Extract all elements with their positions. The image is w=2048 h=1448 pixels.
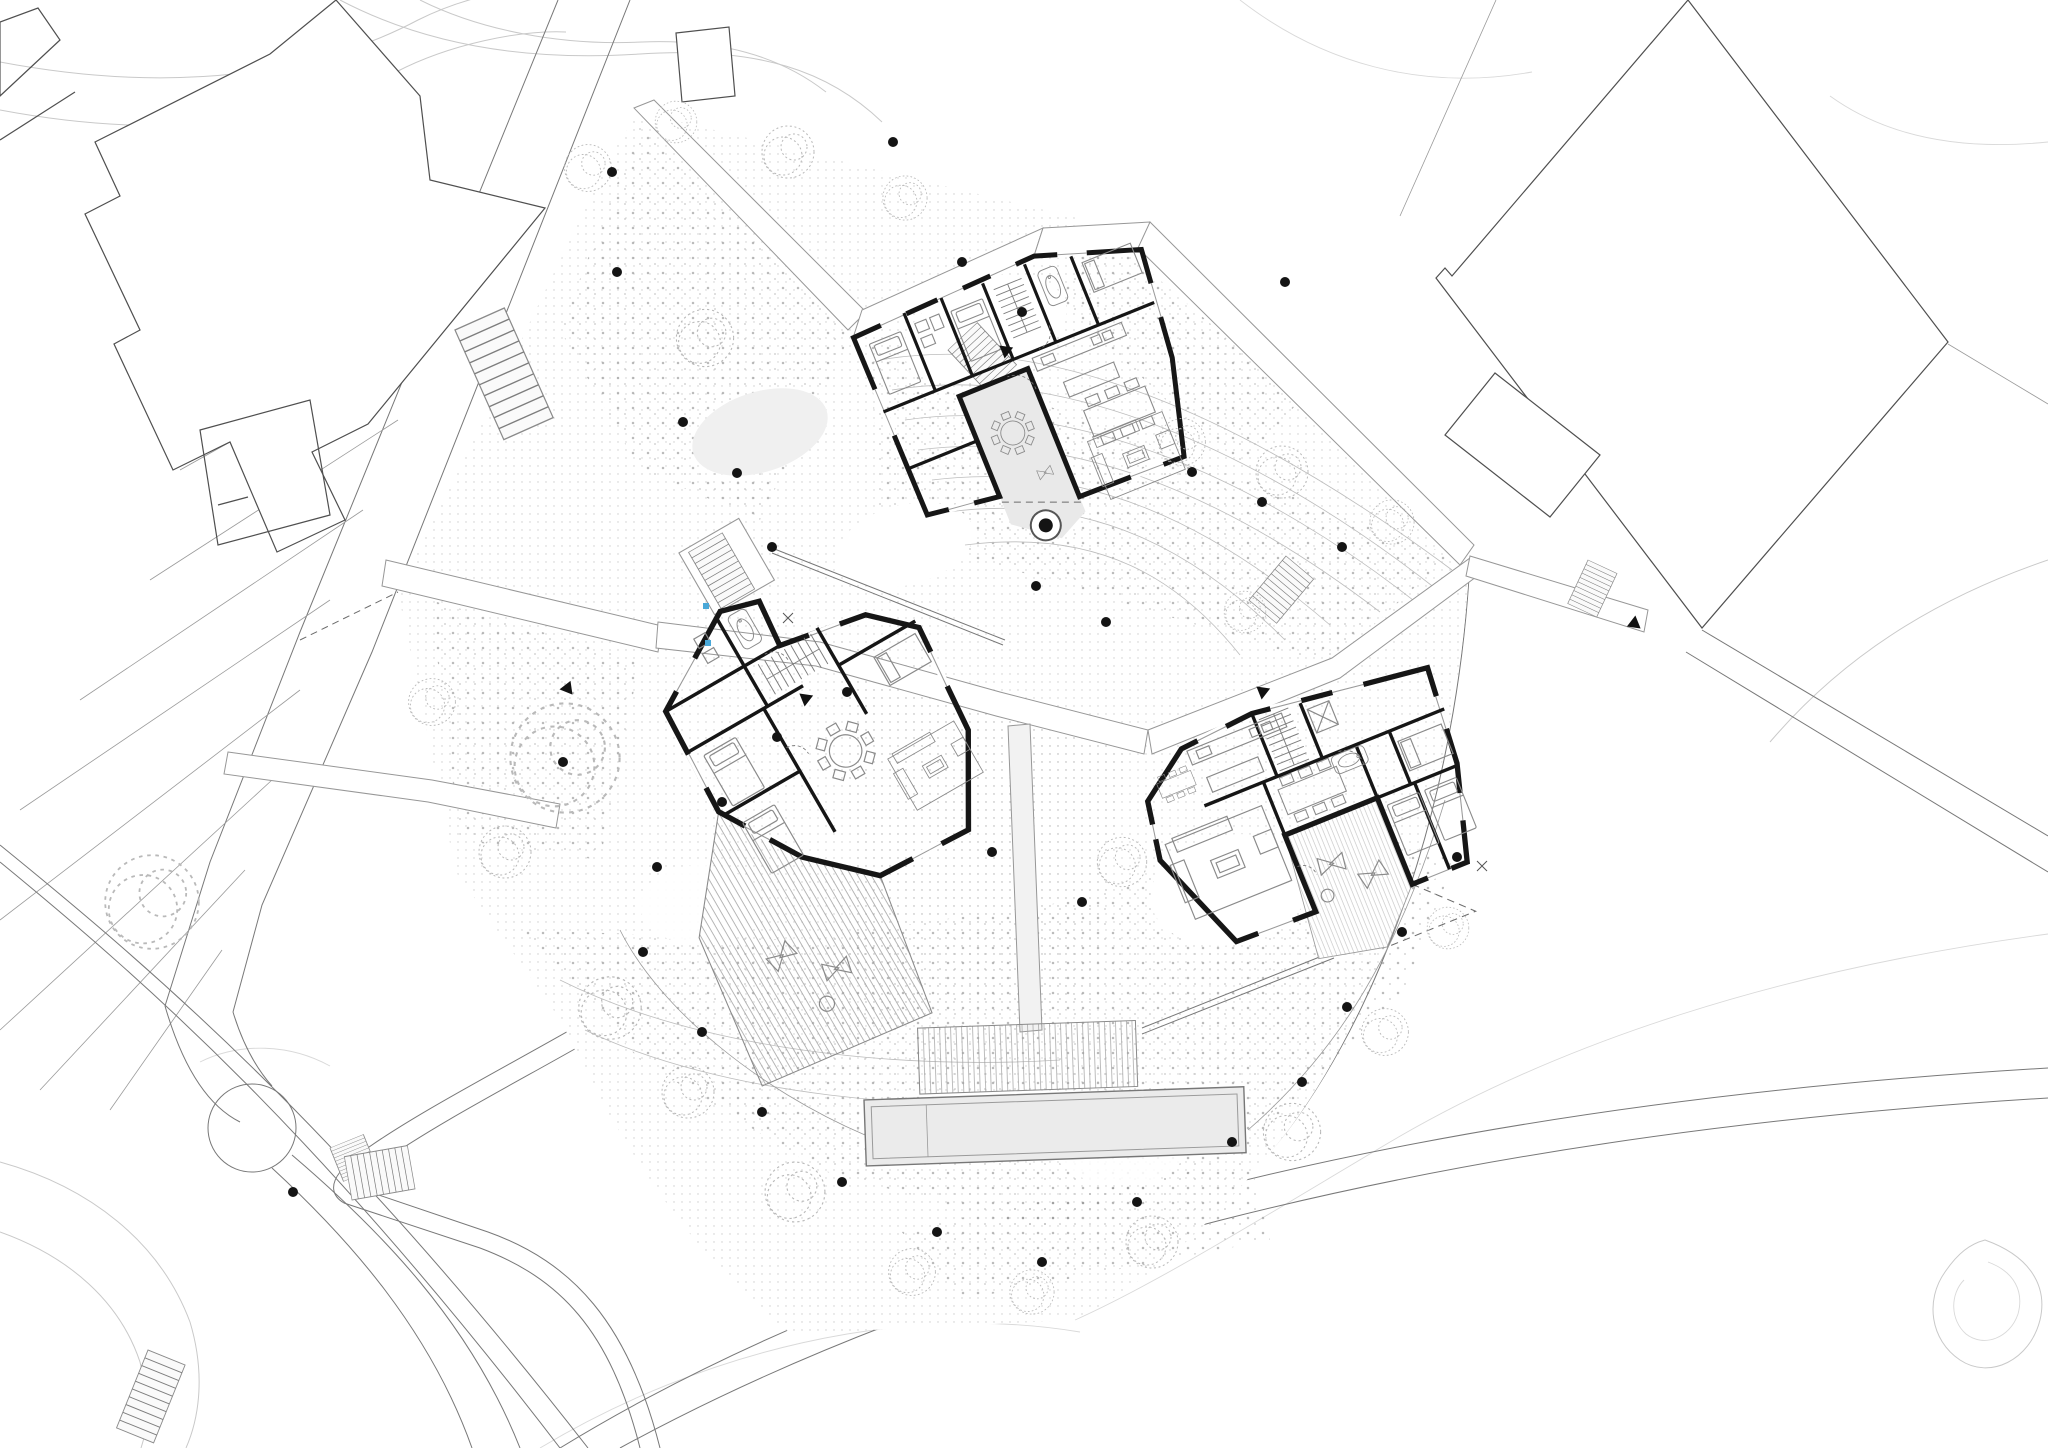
x-marker [1477,861,1487,871]
shrub-dot [837,1177,847,1187]
shrub-dot [1037,1257,1047,1267]
lap-pool [864,1087,1246,1166]
tree-icon [565,145,612,192]
shrub-dot [1342,1002,1352,1012]
road [1686,652,2048,872]
shrub-dot [612,267,622,277]
shrub-dot [558,757,568,767]
road [292,1155,520,1448]
shrub-dot [1031,581,1041,591]
big-tree-icon [105,855,199,949]
road [1400,0,1496,216]
contour-pond-inner [1954,1262,2020,1340]
contour-line [1830,96,2048,145]
shrub-dot [957,257,967,267]
shrub-dot [1132,1197,1142,1207]
neighbor-building-northeast [1436,0,1948,628]
pool-deck [918,1020,1138,1094]
shrub-dot [1187,467,1197,477]
contour-line [1240,0,1532,78]
roundabout-circle [208,1084,296,1172]
shrub-dot [1337,542,1347,552]
shrub-dot [607,167,617,177]
site-plan-canvas [0,0,2048,1448]
shrub-dot [1257,497,1267,507]
road [0,845,588,1448]
shrub-dot [1101,617,1111,627]
terrace-row [0,690,300,920]
terrace-row [80,510,363,700]
shrub-dot [1452,852,1462,862]
shrub-dot [717,797,727,807]
shrub-dot [1077,897,1087,907]
shrub-dot [652,862,662,872]
shrub-dot [1280,277,1290,287]
shrub-dot [757,1107,767,1117]
road [233,1012,272,1086]
shrub-dot [1017,307,1027,317]
neighbor-fragment [0,8,60,96]
stair-flight [117,1350,186,1443]
shrub-dot [288,1187,298,1197]
shrub-dot [1297,1077,1307,1087]
bed [1424,777,1476,840]
parcel-dashed-line [300,592,398,640]
shrub-dot [1227,1137,1237,1147]
contour-pond [1933,1240,2042,1368]
road [165,1006,240,1122]
shrub-dot [1397,927,1407,937]
shrub-dot [772,732,782,742]
shrub-dot [732,468,742,478]
blue-drain-marker [703,603,709,609]
shrub-dot [888,137,898,147]
contour-line [1770,560,2048,742]
shrub-dot [987,847,997,857]
contour-line [420,0,826,92]
contour-line [540,1323,1080,1448]
road [1948,344,2048,404]
road [1702,630,2048,836]
neighbor-fragment [0,92,75,140]
neighbor-building-small [676,27,735,102]
shrub-dot [678,417,688,427]
shrub-dot [932,1227,942,1237]
tree-icon [1427,907,1469,949]
terrace-row [110,950,222,1110]
east-gate-path [1466,556,1648,632]
shrub-dot [697,1027,707,1037]
shrub-dot [767,542,777,552]
shrub-dot [638,947,648,957]
shrub-dot [842,687,852,697]
site-plan-drawing [0,0,2048,1448]
tree-icon [1362,1009,1409,1056]
blue-drain-marker [705,640,711,646]
road [272,1168,472,1448]
terrace-row [0,780,272,1030]
